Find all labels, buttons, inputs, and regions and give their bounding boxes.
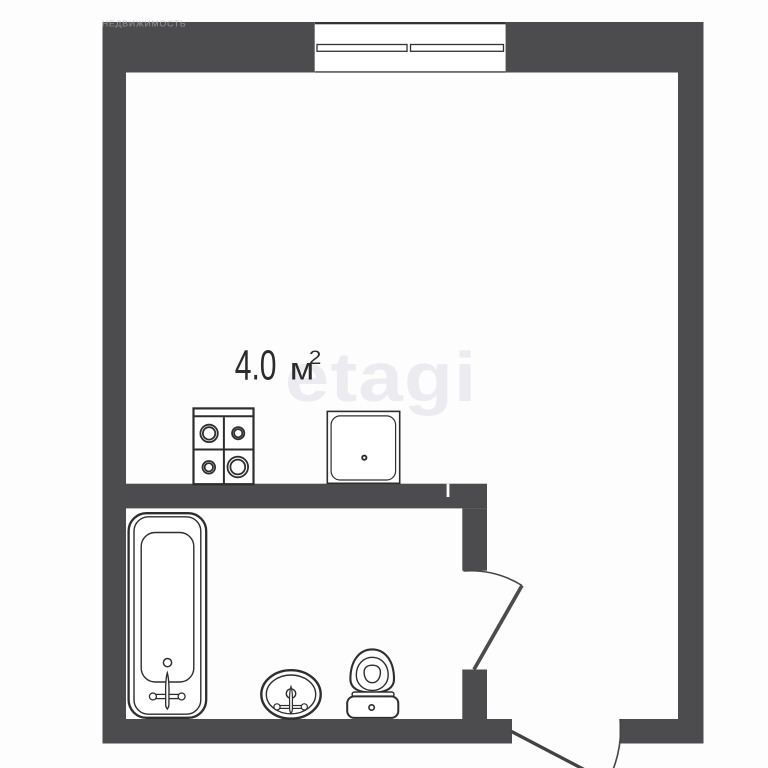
svg-text:4.0: 4.0 bbox=[235, 342, 277, 389]
svg-text:2: 2 bbox=[309, 347, 321, 368]
